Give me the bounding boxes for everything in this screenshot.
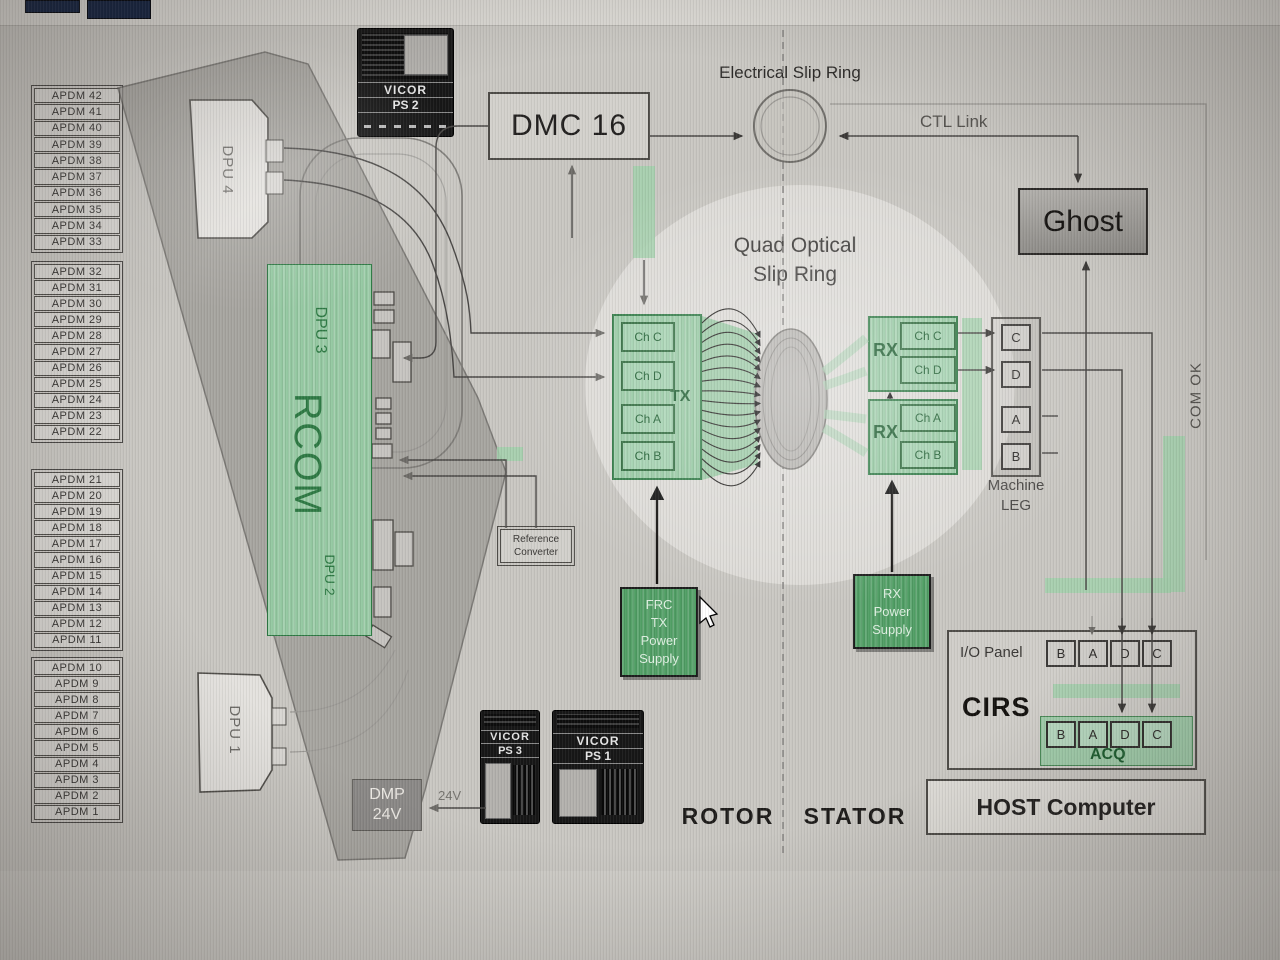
com-green-bar-horizontal bbox=[1045, 578, 1171, 593]
tx-channel-box[interactable]: Ch C bbox=[621, 322, 675, 352]
window-tab-small[interactable] bbox=[25, 0, 80, 13]
apdm-label: APDM 26 bbox=[34, 361, 120, 376]
apdm-label: APDM 5 bbox=[34, 740, 120, 755]
acq-port-box[interactable]: B bbox=[1046, 721, 1076, 748]
vicor-ps2-module[interactable]: VICOR PS 2 bbox=[357, 28, 454, 137]
acq-port-box[interactable]: D bbox=[1110, 721, 1140, 748]
rx-power-supply[interactable]: RX Power Supply bbox=[853, 574, 931, 649]
acq-port-box[interactable]: A bbox=[1078, 721, 1108, 748]
optical-slip-ring-ellipse bbox=[755, 329, 827, 469]
rx-channel-box[interactable]: Ch D bbox=[900, 356, 956, 384]
cirs-title: CIRS bbox=[962, 692, 1031, 723]
rx-channel-box[interactable]: Ch B bbox=[900, 441, 956, 469]
dmc16-block[interactable]: DMC 16 bbox=[488, 92, 650, 160]
vicor-brand-label: VICOR bbox=[358, 82, 453, 98]
dpu4-label: DPU 4 bbox=[178, 140, 278, 200]
host-computer-block[interactable]: HOST Computer bbox=[926, 779, 1206, 835]
leg-port-box[interactable]: B bbox=[1001, 443, 1031, 470]
dpu1-label: DPU 1 bbox=[190, 700, 280, 760]
apdm-label: APDM 1 bbox=[34, 805, 120, 820]
apdm-label: APDM 14 bbox=[34, 585, 120, 600]
psu-circuit-texture bbox=[484, 714, 536, 726]
frc-line2: TX bbox=[651, 614, 668, 632]
frc-line1: FRC bbox=[646, 596, 673, 614]
rxps-line2: Power bbox=[874, 603, 911, 621]
apdm-label: APDM 34 bbox=[34, 218, 120, 233]
apdm-label: APDM 28 bbox=[34, 328, 120, 343]
apdm-label: APDM 37 bbox=[34, 169, 120, 184]
io-port-box[interactable]: D bbox=[1110, 640, 1140, 667]
frc-tx-power-supply[interactable]: FRC TX Power Supply bbox=[620, 587, 698, 677]
rcom-label: RCOM bbox=[237, 410, 377, 500]
io-port-box[interactable]: A bbox=[1078, 640, 1108, 667]
apdm-label: APDM 20 bbox=[34, 488, 120, 503]
apdm-label: APDM 9 bbox=[34, 676, 120, 691]
leg-port-box[interactable]: C bbox=[1001, 324, 1031, 351]
apdm-label: APDM 6 bbox=[34, 724, 120, 739]
electrical-slip-ring-circle bbox=[754, 90, 826, 162]
apdm-label: APDM 35 bbox=[34, 202, 120, 217]
leg-port-box[interactable]: D bbox=[1001, 361, 1031, 388]
ctl-link-label: CTL Link bbox=[920, 112, 1030, 132]
reference-converter-box[interactable]: Reference Converter bbox=[500, 529, 572, 563]
vicor-ps1-module[interactable]: VICOR PS 1 bbox=[552, 710, 644, 824]
tx-channel-box[interactable]: Ch B bbox=[621, 441, 675, 471]
apdm-label: APDM 22 bbox=[34, 425, 120, 440]
dmp-line1: DMP bbox=[369, 785, 405, 805]
cirs-green-bar bbox=[1053, 684, 1180, 698]
io-port-box[interactable]: C bbox=[1142, 640, 1172, 667]
small-green-chip bbox=[497, 447, 523, 461]
quad-optical-label-line2: Slip Ring bbox=[700, 263, 890, 287]
rx-channel-box[interactable]: Ch A bbox=[900, 404, 956, 432]
apdm-label: APDM 39 bbox=[34, 137, 120, 152]
rxps-line1: RX bbox=[883, 585, 901, 603]
tx-channel-box[interactable]: Ch D bbox=[621, 361, 675, 391]
frc-line4: Supply bbox=[639, 650, 679, 668]
apdm-label: APDM 17 bbox=[34, 536, 120, 551]
io-panel-label: I/O Panel bbox=[960, 644, 1023, 661]
apdm-label: APDM 25 bbox=[34, 377, 120, 392]
apdm-label: APDM 21 bbox=[34, 472, 120, 487]
tx-channels: Ch CCh DCh ACh B bbox=[612, 314, 702, 480]
rx-top-channels: Ch CCh D bbox=[868, 316, 958, 392]
psu-panel bbox=[485, 763, 511, 819]
apdm-label: APDM 13 bbox=[34, 601, 120, 616]
apdm-label: APDM 23 bbox=[34, 409, 120, 424]
psu-panel bbox=[559, 769, 597, 817]
apdm-label: APDM 31 bbox=[34, 280, 120, 295]
top-strip bbox=[0, 0, 1280, 26]
tx-channel-box[interactable]: Ch A bbox=[621, 404, 675, 434]
service-diagnostic-screen: APDM 42APDM 41APDM 40APDM 39APDM 38APDM … bbox=[0, 0, 1280, 960]
v24-wire-label: 24V bbox=[438, 788, 461, 803]
apdm-label: APDM 24 bbox=[34, 393, 120, 408]
apdm-label: APDM 40 bbox=[34, 121, 120, 136]
apdm-label: APDM 15 bbox=[34, 569, 120, 584]
apdm-label: APDM 4 bbox=[34, 757, 120, 772]
psu-circuit-texture bbox=[557, 714, 639, 728]
apdm-group-3: APDM 21APDM 20APDM 19APDM 18APDM 17APDM … bbox=[31, 469, 123, 651]
apdm-group-1: APDM 42APDM 41APDM 40APDM 39APDM 38APDM … bbox=[31, 85, 123, 253]
status-strip: 100% Operation Status : SUCCESS Results … bbox=[0, 871, 1280, 960]
rx-leg-green-bar bbox=[962, 318, 982, 470]
vicor-brand-label: VICOR bbox=[553, 733, 643, 749]
optical-fiber-arrows bbox=[702, 309, 760, 486]
apdm-label: APDM 11 bbox=[34, 633, 120, 648]
apdm-label: APDM 18 bbox=[34, 520, 120, 535]
apdm-label: APDM 42 bbox=[34, 88, 120, 103]
rotor-label: ROTOR bbox=[668, 803, 788, 830]
apdm-group-2: APDM 32APDM 31APDM 30APDM 29APDM 28APDM … bbox=[31, 261, 123, 443]
dmp-24v-block[interactable]: DMP 24V bbox=[352, 779, 422, 831]
vicor-ps3-module[interactable]: VICOR PS 3 bbox=[480, 710, 540, 824]
ps1-model-label: PS 1 bbox=[553, 749, 643, 764]
reference-converter-line2: Converter bbox=[514, 546, 558, 559]
machine-leg-label-line2: LEG bbox=[973, 497, 1059, 514]
apdm-label: APDM 41 bbox=[34, 104, 120, 119]
psu-panel bbox=[404, 35, 448, 75]
reference-converter-line1: Reference bbox=[513, 533, 559, 546]
dpu3-label: DPU 3 bbox=[280, 290, 360, 370]
apdm-label: APDM 16 bbox=[34, 552, 120, 567]
apdm-label: APDM 12 bbox=[34, 617, 120, 632]
psu-grid-texture bbox=[513, 765, 535, 815]
apdm-group-4: APDM 10APDM 9APDM 8APDM 7APDM 6APDM 5APD… bbox=[31, 657, 123, 823]
ps3-model-label: PS 3 bbox=[481, 745, 539, 758]
acq-port-box[interactable]: C bbox=[1142, 721, 1172, 748]
stator-label: STATOR bbox=[790, 803, 920, 830]
quad-optical-label-line1: Quad Optical bbox=[700, 234, 890, 258]
io-port-box[interactable]: B bbox=[1046, 640, 1076, 667]
ps2-model-label: PS 2 bbox=[358, 98, 453, 113]
acq-label: ACQ bbox=[1090, 746, 1126, 764]
psu-connector-row bbox=[364, 125, 446, 128]
apdm-label: APDM 2 bbox=[34, 789, 120, 804]
apdm-label: APDM 7 bbox=[34, 708, 120, 723]
com-ok-label: COM OK bbox=[1188, 346, 1205, 446]
apdm-label: APDM 3 bbox=[34, 773, 120, 788]
ghost-block[interactable]: Ghost bbox=[1018, 188, 1148, 255]
dmp-line2: 24V bbox=[373, 805, 401, 825]
fiber-bus-bar bbox=[633, 166, 655, 258]
apdm-label: APDM 32 bbox=[34, 264, 120, 279]
electrical-slip-ring-label: Electrical Slip Ring bbox=[695, 63, 885, 83]
rxps-line3: Supply bbox=[872, 621, 912, 639]
rx-channel-box[interactable]: Ch C bbox=[900, 322, 956, 350]
apdm-label: APDM 10 bbox=[34, 660, 120, 675]
leg-port-box[interactable]: A bbox=[1001, 406, 1031, 433]
apdm-label: APDM 29 bbox=[34, 312, 120, 327]
optical-fiber-green-fan bbox=[824, 338, 866, 453]
machine-leg-label-line1: Machine bbox=[973, 477, 1059, 494]
apdm-label: APDM 36 bbox=[34, 186, 120, 201]
vicor-brand-label: VICOR bbox=[481, 730, 539, 744]
acq-ports: BADC bbox=[1046, 721, 1170, 745]
machine-leg-ports: CDAB bbox=[991, 317, 1041, 477]
apdm-label: APDM 38 bbox=[34, 153, 120, 168]
apdm-label: APDM 8 bbox=[34, 692, 120, 707]
rx-bottom-channels: Ch ACh B bbox=[868, 399, 958, 475]
io-panel-ports: BADC bbox=[1046, 640, 1170, 664]
window-tab-large[interactable] bbox=[87, 0, 151, 19]
apdm-label: APDM 19 bbox=[34, 504, 120, 519]
dpu2-label: DPU 2 bbox=[285, 535, 375, 615]
apdm-label: APDM 33 bbox=[34, 235, 120, 250]
apdm-label: APDM 30 bbox=[34, 296, 120, 311]
com-green-bar-vertical bbox=[1163, 436, 1185, 592]
psu-grid-texture bbox=[601, 769, 637, 815]
frc-line3: Power bbox=[641, 632, 678, 650]
apdm-label: APDM 27 bbox=[34, 344, 120, 359]
